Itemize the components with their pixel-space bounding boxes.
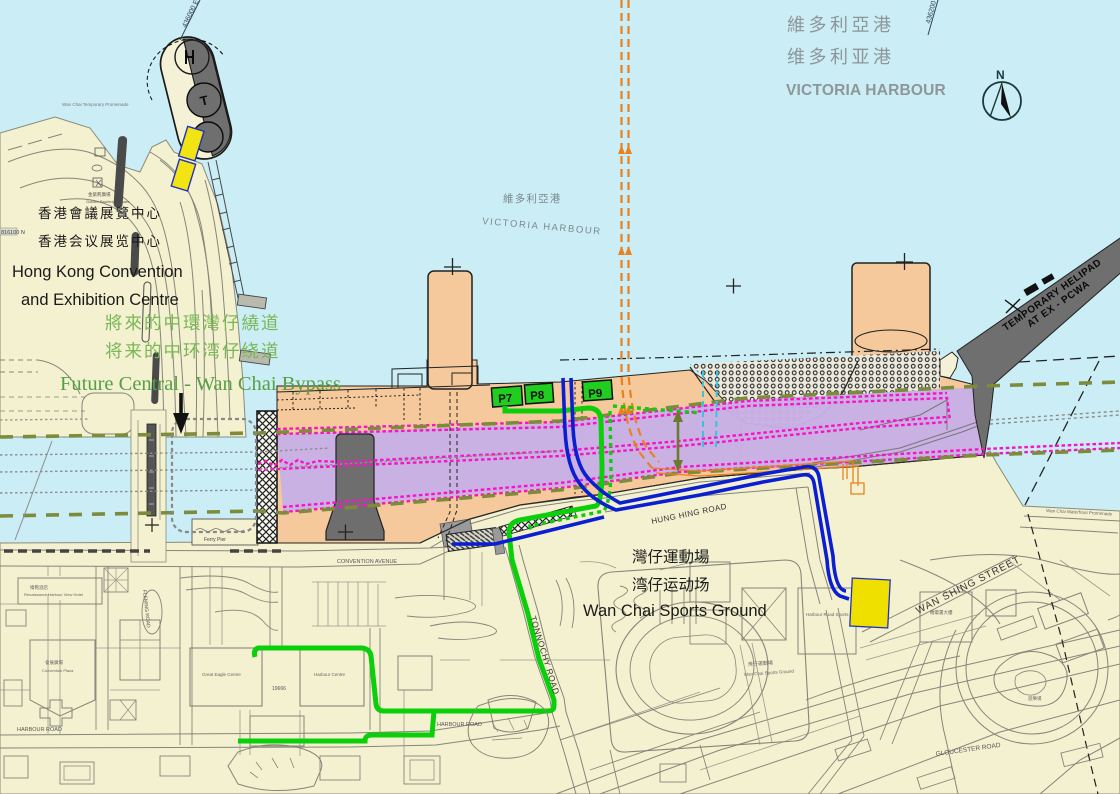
svg-text:遊樂場: 遊樂場 (1028, 695, 1042, 702)
svg-text:HARBOUR ROAD: HARBOUR ROAD (17, 727, 62, 733)
svg-text:灣仔運動場: 灣仔運動場 (632, 548, 710, 566)
svg-text:Convention Plaza: Convention Plaza (42, 668, 74, 673)
svg-text:香港会议展览中心: 香港会议展览中心 (38, 234, 162, 249)
svg-text:816100 N: 816100 N (1, 230, 25, 236)
svg-text:機電署大樓: 機電署大樓 (930, 609, 953, 616)
svg-text:會展廣場: 會展廣場 (45, 659, 63, 666)
svg-text:将来的中环湾仔绕道: 将来的中环湾仔绕道 (105, 341, 281, 361)
svg-text:19666: 19666 (272, 686, 286, 692)
svg-text:維多利亞港: 維多利亞港 (787, 15, 895, 35)
svg-text:维多利亚港: 维多利亚港 (787, 47, 895, 67)
svg-text:將來的中環灣仔繞道: 將來的中環灣仔繞道 (105, 313, 281, 333)
svg-text:VICTORIA HARBOUR: VICTORIA HARBOUR (786, 82, 946, 99)
svg-text:Hong Kong Convention: Hong Kong Convention (12, 263, 183, 281)
svg-text:Ferry Pier: Ferry Pier (204, 537, 226, 543)
svg-text:N: N (996, 68, 1005, 82)
svg-text:CONVENTION AVENUE: CONVENTION AVENUE (337, 559, 397, 565)
svg-text:P8: P8 (530, 390, 545, 403)
svg-text:維多利亞港: 維多利亞港 (503, 192, 562, 205)
svg-text:P7: P7 (498, 393, 513, 406)
svg-text:Great Eagle Centre: Great Eagle Centre (202, 672, 241, 677)
svg-text:Renaissance Harbour View Hotel: Renaissance Harbour View Hotel (24, 592, 83, 597)
svg-text:Future Central - Wan Chai Bypa: Future Central - Wan Chai Bypass (60, 373, 341, 395)
svg-text:and Exhibition Centre: and Exhibition Centre (21, 291, 179, 309)
svg-text:HARBOUR ROAD: HARBOUR ROAD (437, 722, 482, 728)
svg-text:媠鞄酒店: 媠鞄酒店 (30, 584, 48, 591)
svg-text:湾仔运动场: 湾仔运动场 (632, 576, 710, 594)
svg-text:金紫荊廣場: 金紫荊廣場 (88, 191, 111, 198)
svg-text:P9: P9 (588, 388, 603, 401)
svg-text:Wan Chai Sports Ground: Wan Chai Sports Ground (583, 602, 767, 620)
svg-text:Harbour Centre: Harbour Centre (314, 672, 346, 677)
svg-text:香港會議展覽中心: 香港會議展覽中心 (38, 205, 162, 221)
svg-text:Golden Bauhinia Square: Golden Bauhinia Square (86, 199, 130, 204)
svg-text:Wan Chai Temporary Promenade: Wan Chai Temporary Promenade (62, 102, 129, 107)
